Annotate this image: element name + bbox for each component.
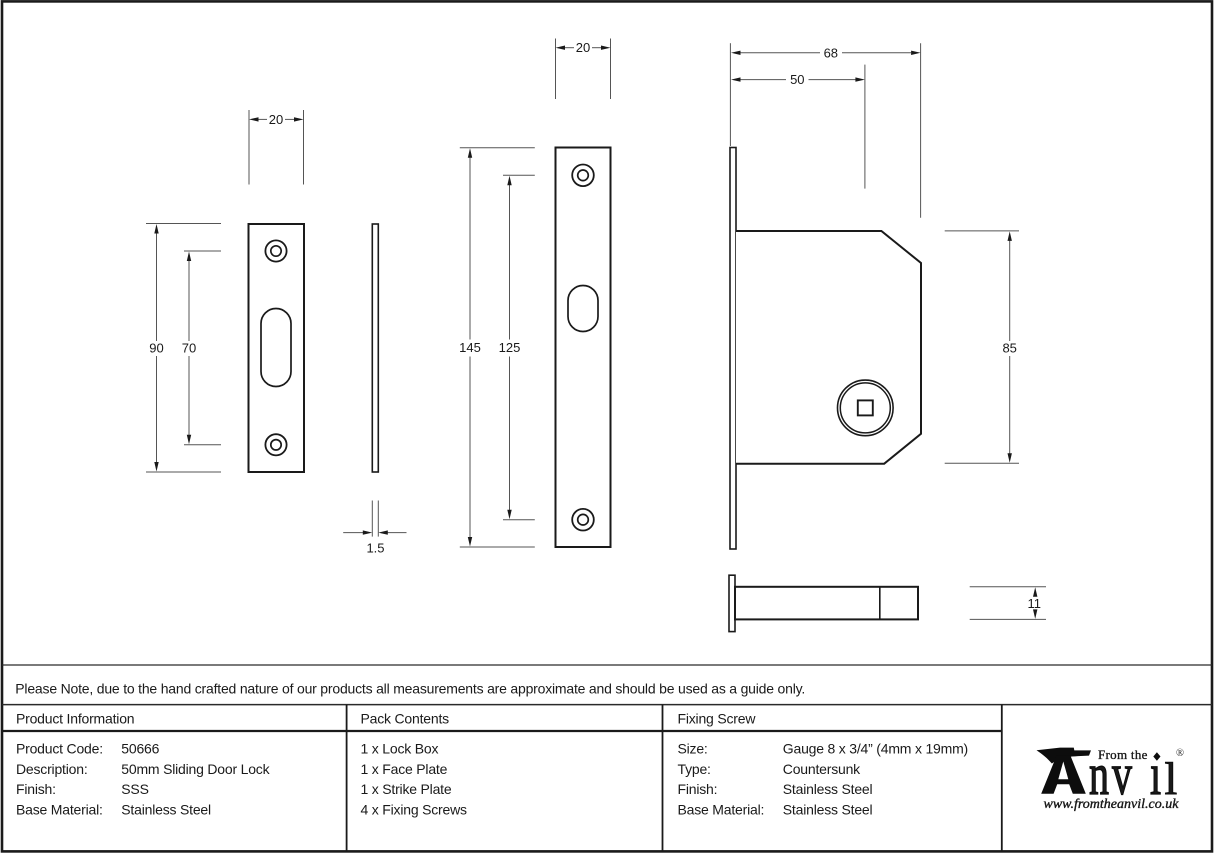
svg-text:Stainless Steel: Stainless Steel — [783, 781, 873, 797]
svg-text:1.5: 1.5 — [366, 540, 384, 555]
svg-text:®: ® — [1176, 748, 1184, 759]
svg-text:Gauge 8 x 3/4” (4mm x 19mm): Gauge 8 x 3/4” (4mm x 19mm) — [783, 740, 968, 756]
svg-text:Fixing Screw: Fixing Screw — [678, 710, 757, 726]
svg-text:1 x Face Plate: 1 x Face Plate — [361, 761, 448, 777]
svg-text:50: 50 — [790, 72, 804, 87]
svg-text:Size:: Size: — [678, 740, 708, 756]
svg-text:Stainless Steel: Stainless Steel — [783, 801, 873, 817]
svg-text:20: 20 — [576, 40, 590, 55]
svg-text:Countersunk: Countersunk — [783, 761, 861, 777]
svg-text:Product Code:: Product Code: — [16, 740, 103, 756]
svg-text:125: 125 — [499, 340, 521, 355]
svg-text:11: 11 — [1027, 596, 1041, 611]
svg-text:68: 68 — [824, 45, 838, 60]
svg-text:90: 90 — [149, 340, 163, 355]
svg-text:50mm Sliding Door Lock: 50mm Sliding Door Lock — [121, 761, 270, 777]
svg-text:85: 85 — [1002, 340, 1016, 355]
svg-text:Type:: Type: — [678, 761, 711, 777]
svg-text:Base Material:: Base Material: — [16, 801, 103, 817]
svg-text:Finish:: Finish: — [678, 781, 718, 797]
svg-text:Stainless Steel: Stainless Steel — [121, 801, 211, 817]
svg-text:Product Information: Product Information — [16, 710, 134, 726]
svg-text:50666: 50666 — [121, 740, 159, 756]
svg-text:1 x Lock Box: 1 x Lock Box — [361, 740, 439, 756]
svg-text:1 x Strike Plate: 1 x Strike Plate — [361, 781, 452, 797]
svg-text:145: 145 — [459, 340, 481, 355]
svg-text:Finish:: Finish: — [16, 781, 56, 797]
svg-text:SSS: SSS — [121, 781, 148, 797]
svg-text:Please Note, due to the hand c: Please Note, due to the hand crafted nat… — [15, 681, 805, 697]
svg-text:4 x Fixing Screws: 4 x Fixing Screws — [361, 801, 467, 817]
svg-text:Description:: Description: — [16, 761, 88, 777]
svg-text:Pack Contents: Pack Contents — [361, 710, 450, 726]
svg-text:www.fromtheanvil.co.uk: www.fromtheanvil.co.uk — [1044, 797, 1180, 812]
svg-text:20: 20 — [269, 112, 283, 127]
svg-text:Base Material:: Base Material: — [678, 801, 765, 817]
svg-text:70: 70 — [182, 340, 196, 355]
